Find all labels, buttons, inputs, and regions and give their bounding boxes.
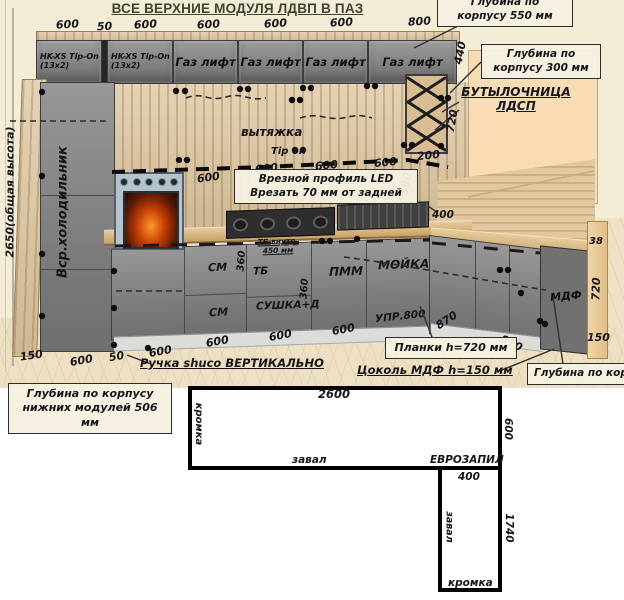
dim-bot-50: 50: [108, 350, 125, 365]
cabinet-label: HK-XS Tip-On (13x2): [40, 53, 99, 71]
cabinet-divider: [475, 242, 476, 339]
fridge-line2: [41, 269, 114, 270]
fridge-line: [41, 195, 114, 196]
hob: [226, 207, 335, 239]
label-tb: ТБ: [253, 265, 268, 278]
note-bottle: БУТЫЛОЧНИЦА ЛДСП: [458, 86, 574, 114]
note-tsokol: Цоколь МДФ h=150 мм: [357, 364, 513, 377]
note-planki: Планки h=720 мм: [385, 337, 517, 359]
dim-360b: 360: [298, 278, 311, 299]
dim-top-600d: 600: [264, 17, 288, 31]
oven-knobs: [120, 177, 178, 187]
cabinet-divider: [366, 241, 367, 331]
note-depth-300: Глубина по корпусу 300 мм: [481, 44, 601, 79]
dim-top-600c: 600: [197, 18, 221, 32]
label-sm-bottom: СМ: [209, 307, 228, 320]
upper-cabinet-gas-2: Газ лифт: [238, 40, 303, 84]
plan-dim-2600: 2600: [318, 388, 350, 401]
cabinet-divider: [509, 246, 510, 343]
page-title: ВСЕ ВЕРХНИЕ МОДУЛЯ ЛДВП В ПАЗ: [95, 1, 380, 16]
cabinet-label: Газ лифт: [305, 56, 365, 69]
fridge-label: Вср.холодильник: [57, 146, 72, 278]
cabinet-label: Газ лифт: [240, 56, 300, 69]
plan-zaval-side: завал: [443, 511, 454, 542]
fridge-front: [40, 82, 115, 352]
cabinet-label: Газ лифт: [175, 56, 235, 69]
upper-cabinet-gas-1: Газ лифт: [173, 40, 238, 84]
upper-cabinet-hkxs-2: HK-XS Tip-On (13x2): [107, 40, 173, 84]
plan-dim-600: 600: [502, 418, 514, 440]
dim-400-sink: 400: [432, 209, 454, 221]
plan-zaval-bottom: завал: [292, 454, 327, 466]
dim-top-600b: 600: [134, 18, 158, 32]
sink: [337, 201, 429, 230]
plan-kromka-left: кромка: [192, 403, 204, 446]
label-moyka: МОЙКА: [378, 258, 429, 274]
oven: [114, 172, 184, 250]
dim-top-600a: 600: [56, 18, 80, 32]
kitchen-drawing: ВСЕ ВЕРХНИЕ МОДУЛЯ ЛДВП В ПАЗ HK-XS Tip-…: [0, 0, 624, 600]
dim-200: 200: [416, 149, 440, 164]
upper-cabinet-gas-3: Газ лифт: [303, 40, 368, 84]
tb-inner-note: ТБ внутр. 450 мм: [250, 237, 306, 256]
label-sm-top: СМ: [208, 262, 227, 275]
drawer-line: [184, 293, 246, 296]
cabinet-label: Газ лифт: [382, 56, 442, 69]
tip-on-label: Tip on: [271, 146, 306, 158]
plan-dim-400: 400: [458, 471, 480, 483]
dim-150-right: 150: [587, 332, 610, 345]
cabinet-divider: [184, 247, 185, 337]
note-lower-depth: Глубина по корпусу нижних модулей 506 мм: [8, 383, 172, 434]
bottle-rack: [405, 74, 448, 154]
upper-cabinet-hkxs-1: HK-XS Tip-On (13x2): [36, 40, 102, 84]
dim-360a: 360: [235, 250, 248, 271]
cabinet-label: HK-XS Tip-On (13x2): [111, 53, 170, 71]
dim-top-600e: 600: [330, 16, 354, 30]
dim-440: 440: [452, 40, 469, 65]
dim-top-50: 50: [97, 21, 113, 34]
label-upr800: УПР.800: [375, 308, 426, 325]
dim-top-800: 800: [408, 15, 432, 29]
base-run: СМ 360 ТБ внутр. 450 мм ТБ 360 ПММ МОЙКА…: [111, 237, 434, 340]
hood-label: вытяжка: [241, 126, 302, 140]
upper-cabinet-row: HK-XS Tip-On (13x2) HK-XS Tip-On (13x2) …: [36, 40, 457, 86]
note-right-depth: Глубина по корпусу: [527, 363, 624, 385]
plan-dim-1740: 1740: [503, 513, 515, 542]
dim-38: 38: [589, 236, 603, 248]
led-note: Врезной профиль LED Врезать 70 мм от зад…: [234, 169, 418, 204]
cabinet-divider: [311, 243, 312, 333]
label-sushka: СУШКА+Д: [256, 298, 320, 312]
total-height-label: 2650(общая высота): [5, 126, 18, 257]
oven-window: [123, 191, 179, 249]
dim-720-right: 720: [590, 277, 603, 300]
note-handle: Ручка shuco ВЕРТИКАЛЬНО: [140, 357, 324, 370]
plan-kromka-end: кромка: [448, 577, 493, 589]
plan-evrozapil: ЕВРОЗАПИЛ: [430, 454, 504, 466]
label-pmm: ПММ: [329, 265, 363, 280]
note-depth-550: Глубина по корпусу 550 мм: [437, 0, 573, 27]
